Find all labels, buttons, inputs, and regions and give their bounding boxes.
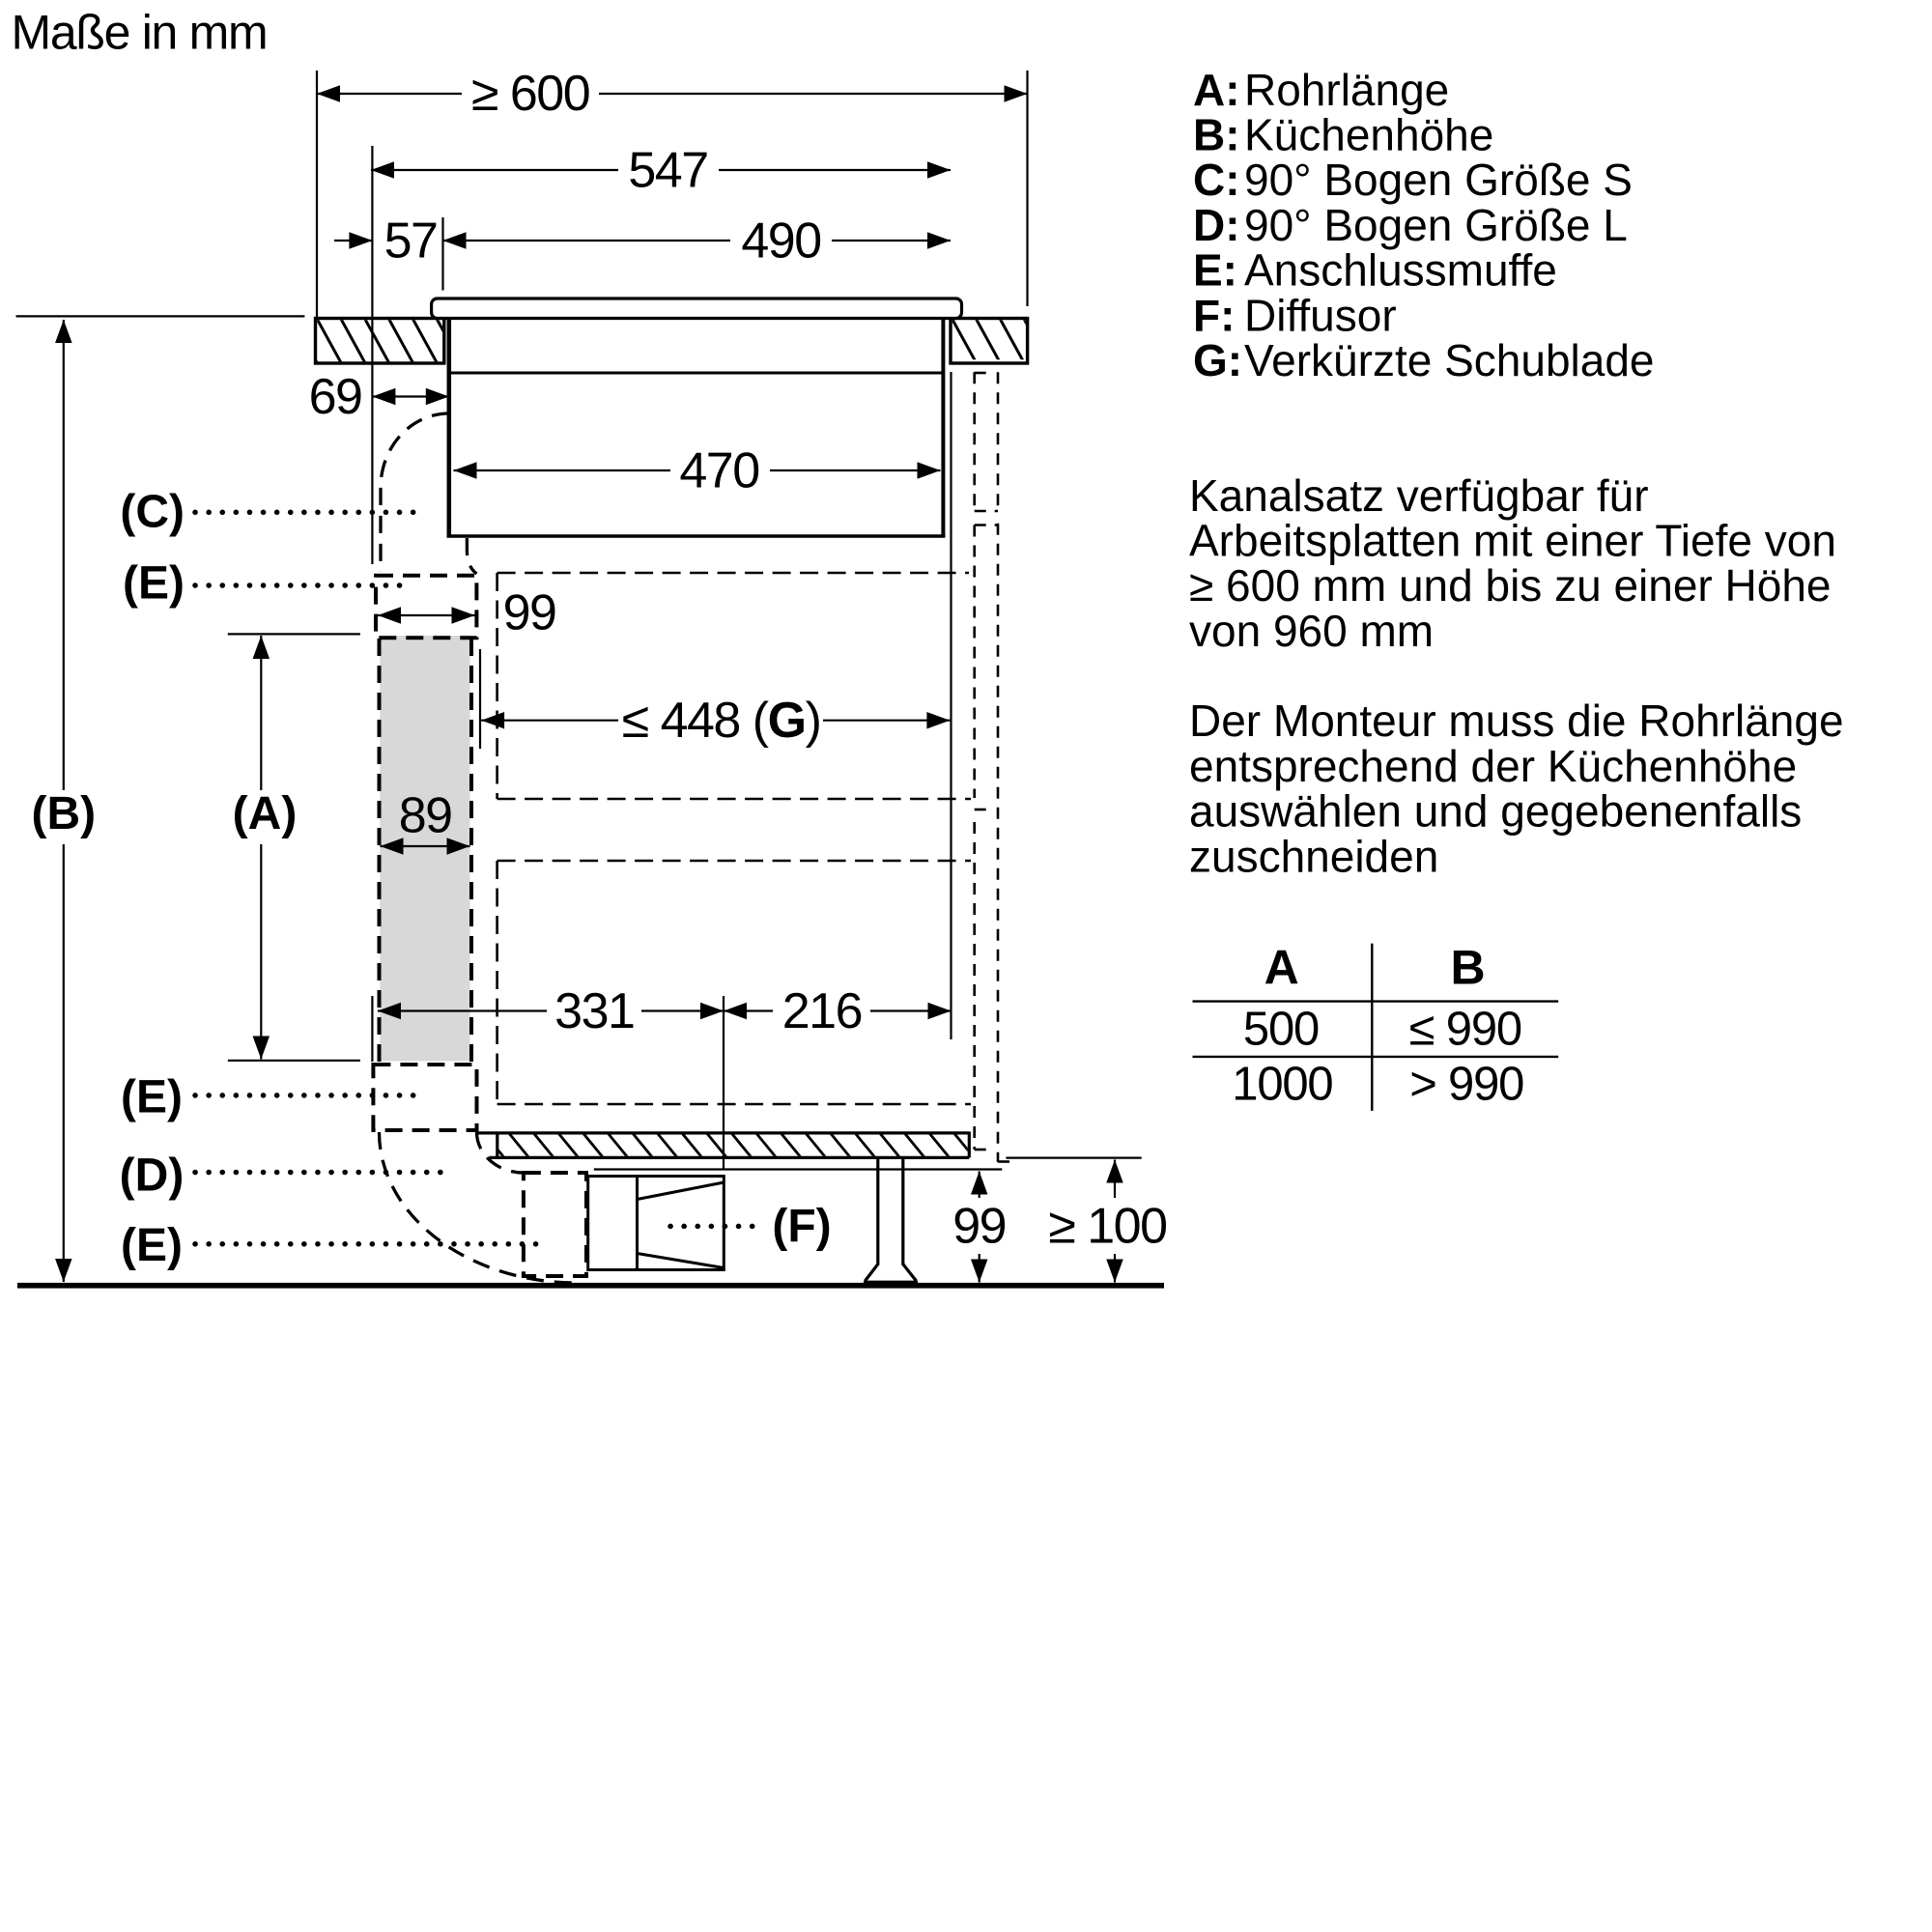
svg-text:A: A	[1264, 941, 1299, 995]
svg-text:Anschlussmuffe: Anschlussmuffe	[1244, 245, 1557, 296]
svg-text:Rohrlänge: Rohrlänge	[1244, 65, 1449, 115]
svg-text:> 990: > 990	[1409, 1059, 1523, 1111]
svg-text:D:: D:	[1193, 200, 1240, 250]
svg-text:(E): (E)	[121, 1071, 183, 1122]
svg-text:auswählen und gegebenenfalls: auswählen und gegebenenfalls	[1189, 786, 1802, 837]
svg-text:57: 57	[384, 213, 438, 270]
svg-text:von 960 mm: von 960 mm	[1189, 606, 1434, 656]
svg-text:490: 490	[741, 213, 820, 270]
svg-text:(E): (E)	[121, 1220, 183, 1271]
svg-text:zuschneiden: zuschneiden	[1189, 831, 1438, 881]
svg-text:entsprechend der Küchenhöhe: entsprechend der Küchenhöhe	[1189, 741, 1797, 791]
svg-text:Maße in mm: Maße in mm	[12, 6, 268, 60]
svg-text:≥ 600 mm und bis zu einer Höhe: ≥ 600 mm und bis zu einer Höhe	[1189, 560, 1831, 611]
svg-text:331: 331	[554, 983, 634, 1039]
svg-text:89: 89	[399, 788, 452, 844]
svg-text:C:: C:	[1193, 155, 1240, 205]
svg-text:A:: A:	[1193, 65, 1240, 115]
svg-text:Diffusor: Diffusor	[1244, 290, 1397, 340]
svg-text:Der Monteur muss die Rohrlänge: Der Monteur muss die Rohrlänge	[1189, 696, 1844, 746]
svg-text:(B): (B)	[31, 788, 96, 839]
svg-text:≤ 990: ≤ 990	[1409, 1003, 1521, 1055]
svg-text:(A): (A)	[233, 788, 298, 839]
svg-text:Verkürzte Schublade: Verkürzte Schublade	[1244, 335, 1655, 385]
svg-text:≥ 100: ≥ 100	[1048, 1199, 1166, 1255]
svg-text:470: 470	[679, 443, 758, 499]
svg-text:1000: 1000	[1232, 1059, 1332, 1111]
svg-text:B:: B:	[1193, 110, 1240, 160]
svg-text:99: 99	[952, 1199, 1006, 1255]
svg-text:99: 99	[503, 585, 556, 641]
svg-text:69: 69	[309, 369, 362, 425]
svg-text:90° Bogen Größe L: 90° Bogen Größe L	[1244, 200, 1628, 250]
svg-text:(D): (D)	[120, 1151, 185, 1202]
svg-text:Arbeitsplatten mit einer Tiefe: Arbeitsplatten mit einer Tiefe von	[1189, 516, 1836, 566]
svg-text:90° Bogen Größe S: 90° Bogen Größe S	[1244, 155, 1633, 205]
svg-text:E:: E:	[1193, 245, 1237, 296]
svg-text:Küchenhöhe: Küchenhöhe	[1244, 110, 1493, 160]
svg-text:≥ 600: ≥ 600	[471, 66, 589, 122]
svg-text:216: 216	[782, 983, 862, 1039]
svg-text:B: B	[1450, 941, 1485, 995]
svg-text:500: 500	[1243, 1003, 1319, 1055]
svg-text:G:: G:	[1193, 335, 1242, 385]
svg-text:547: 547	[628, 143, 707, 199]
svg-text:F:: F:	[1193, 290, 1235, 340]
svg-text:Kanalsatz verfügbar für: Kanalsatz verfügbar für	[1189, 470, 1649, 521]
svg-text:(E): (E)	[123, 558, 185, 610]
svg-text:(C): (C)	[120, 487, 185, 538]
svg-text:(F): (F)	[772, 1201, 831, 1252]
svg-text:≤ 448 (G): ≤ 448 (G)	[622, 693, 821, 749]
